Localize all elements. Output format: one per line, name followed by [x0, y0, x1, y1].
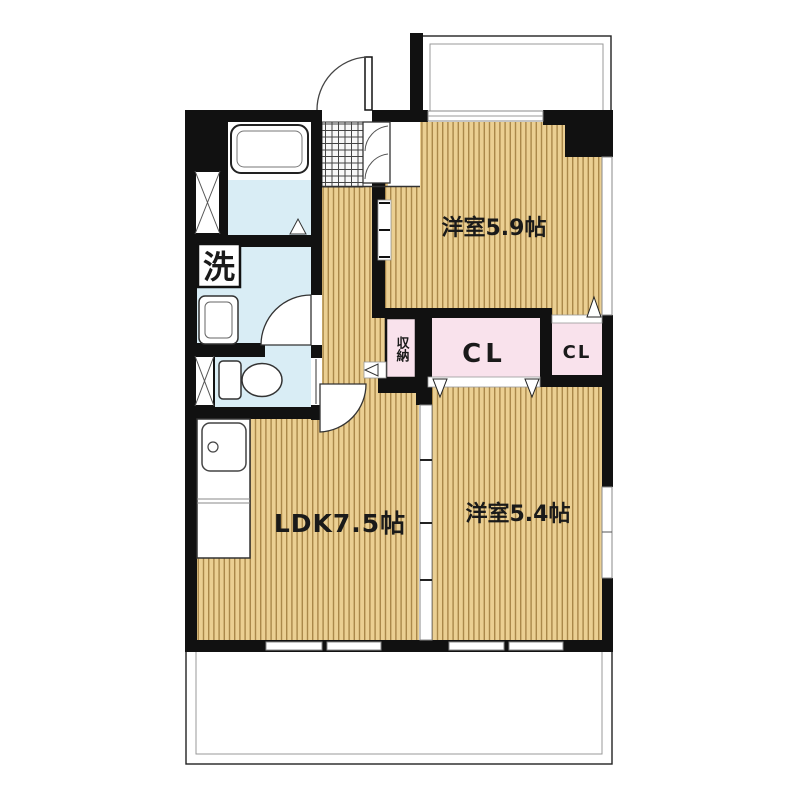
- wall-segment: [543, 110, 613, 125]
- pipe-space-lower: [195, 356, 214, 406]
- kitchen-faucet: [208, 442, 218, 452]
- bathtub-outer: [231, 125, 308, 173]
- washroom-door-opening: [311, 295, 322, 345]
- kitchen-counter: [197, 419, 250, 558]
- window-bedroom1-right: [602, 157, 612, 315]
- window-bedroom2-bottom-right: [509, 642, 563, 650]
- window-bedroom2-bottom-left: [449, 642, 504, 650]
- vanity-sink: [199, 296, 238, 344]
- closet-main-label: CL: [462, 339, 506, 369]
- pipe-space-upper: [195, 171, 220, 234]
- wall-segment: [311, 122, 322, 295]
- wall-segment: [565, 125, 613, 157]
- washing-machine-label: 洗: [203, 248, 235, 286]
- genkan-step-area: [388, 122, 420, 187]
- washing-machine: 洗: [198, 244, 240, 287]
- storage-label: 収納: [394, 336, 410, 363]
- wall-segment: [540, 375, 613, 387]
- bedroom1-label: 洋室5.9帖: [442, 215, 547, 241]
- wall-segment: [410, 33, 423, 122]
- toilet: [219, 361, 282, 399]
- genkan-tile-floor: [322, 122, 363, 187]
- window-ldk-bottom-left: [266, 642, 322, 650]
- wall-segment: [185, 110, 322, 122]
- shoe-cabinet: [363, 122, 390, 183]
- sliding-partition: [420, 405, 432, 640]
- balcony-bottom-outline: [186, 650, 612, 764]
- wall-segment: [602, 315, 613, 487]
- floor-plan-svg: 洗: [0, 0, 800, 800]
- wall-segment: [311, 345, 322, 358]
- wall-segment: [197, 407, 322, 419]
- wall-segment: [197, 343, 265, 357]
- toilet-bowl: [242, 364, 282, 397]
- toilet-tank: [219, 361, 241, 399]
- balcony-top-outline: [422, 36, 611, 115]
- ldk-label: LDK7.5帖: [274, 509, 406, 538]
- closet-sub-label: CL: [563, 342, 592, 363]
- floor-plan-page: 洗: [0, 0, 800, 800]
- balcony-top: [422, 36, 611, 115]
- shoe-cabinet-box: [363, 122, 390, 183]
- wall-segment: [540, 315, 552, 377]
- bedroom2-label: 洋室5.4帖: [466, 501, 571, 527]
- bathtub: [231, 125, 308, 173]
- entry-door-swing-arc: [317, 57, 366, 110]
- wall-segment: [378, 378, 430, 393]
- balcony-bottom: [186, 650, 612, 764]
- window-ldk-bottom-right: [327, 642, 381, 650]
- entry-door-leaf: [365, 57, 372, 110]
- wall-segment: [372, 308, 552, 318]
